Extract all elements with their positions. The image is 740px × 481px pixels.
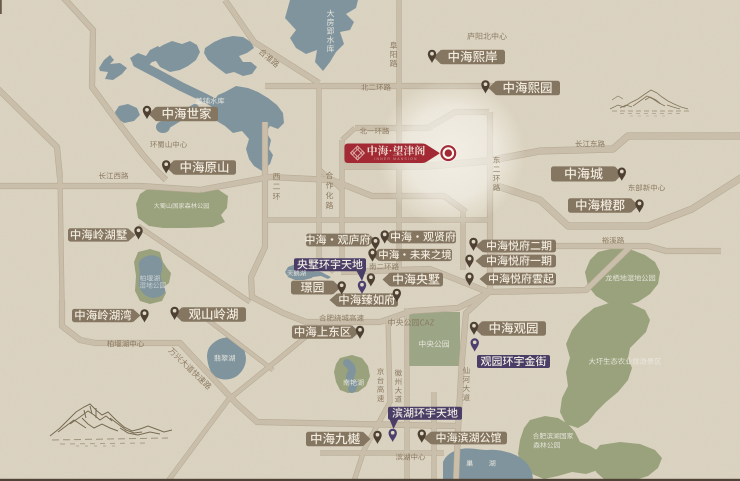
svg-text:INNER MANSION: INNER MANSION: [374, 157, 417, 161]
